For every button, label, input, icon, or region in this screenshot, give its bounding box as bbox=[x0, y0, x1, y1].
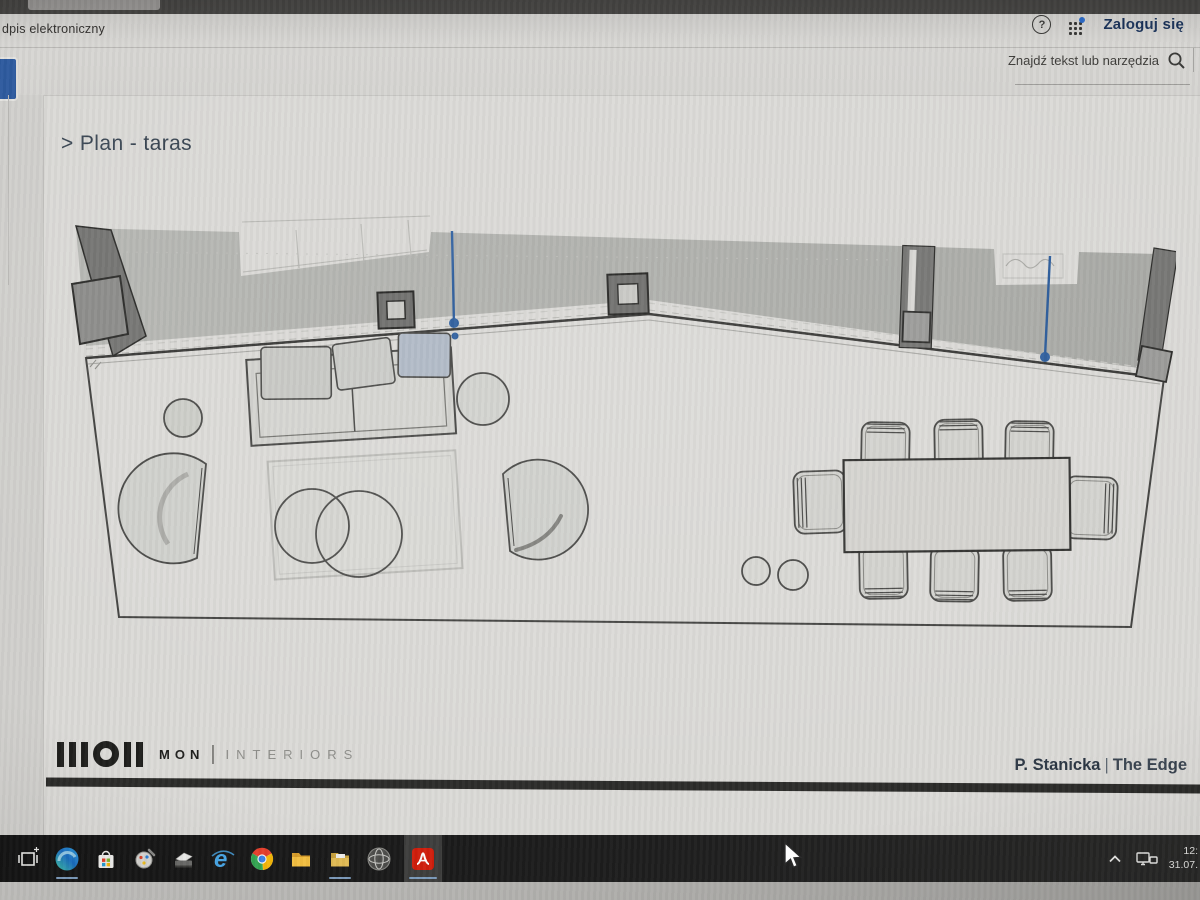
search-divider bbox=[1193, 48, 1194, 72]
pdf-page: > Plan - taras bbox=[43, 95, 1200, 836]
floor-plan bbox=[56, 206, 1176, 636]
task-view-icon[interactable] bbox=[14, 835, 42, 882]
page-bottom-rule bbox=[46, 777, 1200, 793]
coffee-table-1 bbox=[275, 489, 349, 563]
left-panel-edge bbox=[8, 95, 9, 285]
wall-middle-right bbox=[899, 245, 935, 348]
help-icon[interactable]: ? bbox=[1032, 15, 1051, 34]
brand-suffix: INTERIORS bbox=[226, 747, 360, 762]
edge-icon[interactable] bbox=[53, 835, 81, 882]
page-title: > Plan - taras bbox=[61, 132, 192, 156]
chrome-icon[interactable] bbox=[248, 835, 276, 882]
screen-photo: dpis elektroniczny ? Zaloguj się Znajdź … bbox=[0, 0, 1200, 900]
tray-chevron-icon[interactable] bbox=[1105, 849, 1125, 869]
apps-grid-icon[interactable] bbox=[1069, 17, 1085, 33]
search-icon[interactable] bbox=[1167, 51, 1186, 70]
globe-icon[interactable] bbox=[365, 835, 393, 882]
scanner-icon[interactable] bbox=[170, 835, 198, 882]
system-tray: 12: 31.07. bbox=[1105, 835, 1200, 882]
window-top-strip bbox=[0, 0, 1200, 14]
documents-folder-icon[interactable] bbox=[326, 835, 354, 882]
login-button[interactable]: Zaloguj się bbox=[1103, 16, 1184, 33]
background-window-edge bbox=[28, 0, 160, 10]
brand-logo: MON | INTERIORS bbox=[57, 740, 359, 768]
toolbar-divider bbox=[0, 47, 1200, 48]
app-background bbox=[0, 95, 43, 835]
column-2 bbox=[607, 273, 648, 314]
toolbar-right-group: ? Zaloguj się bbox=[1032, 15, 1184, 34]
dining-chair-bottom-2 bbox=[930, 546, 979, 602]
dining-table bbox=[844, 458, 1071, 552]
tray-clock[interactable]: 12: 31.07. bbox=[1169, 845, 1198, 871]
mouse-cursor bbox=[783, 842, 805, 872]
column-1 bbox=[377, 291, 414, 328]
pouf-1 bbox=[742, 557, 770, 585]
side-table-round bbox=[457, 373, 509, 425]
interior-sketch-right bbox=[1003, 254, 1063, 278]
credit-divider: | bbox=[1100, 756, 1112, 774]
project-name: The Edge bbox=[1113, 756, 1187, 774]
left-panel-tool-icon[interactable] bbox=[0, 57, 18, 101]
tray-date: 31.07. bbox=[1169, 859, 1198, 872]
author-credit: P. Stanicka|The Edge bbox=[1015, 756, 1187, 775]
sofa bbox=[245, 330, 456, 446]
dining-chair-left bbox=[793, 470, 847, 534]
author-name: P. Stanicka bbox=[1015, 756, 1101, 774]
search-input[interactable]: Znajdź tekst lub narzędzia bbox=[1008, 53, 1159, 68]
brand-logo-mark bbox=[57, 741, 143, 767]
search-underline bbox=[1015, 84, 1190, 85]
document-tab-title[interactable]: dpis elektroniczny bbox=[2, 22, 105, 36]
network-display-icon[interactable] bbox=[1135, 848, 1159, 870]
pouf-2 bbox=[778, 560, 808, 590]
brand-name: MON bbox=[159, 747, 204, 762]
paint-icon[interactable] bbox=[131, 835, 159, 882]
tray-time: 12: bbox=[1169, 845, 1198, 858]
taskbar-icons: e bbox=[6, 835, 442, 882]
brand-divider: | bbox=[210, 743, 215, 766]
side-table-small bbox=[164, 399, 202, 437]
internet-explorer-icon[interactable]: e bbox=[209, 835, 237, 882]
dining-chair-right bbox=[1064, 476, 1118, 540]
file-explorer-icon[interactable] bbox=[287, 835, 315, 882]
microsoft-store-icon[interactable] bbox=[92, 835, 120, 882]
search-bar[interactable]: Znajdź tekst lub narzędzia bbox=[1008, 51, 1186, 70]
acrobat-reader-icon[interactable] bbox=[404, 835, 442, 882]
dining-chair-bottom-3 bbox=[1003, 545, 1052, 601]
svg-text:e: e bbox=[214, 846, 227, 872]
laptop-bezel bbox=[0, 882, 1200, 900]
